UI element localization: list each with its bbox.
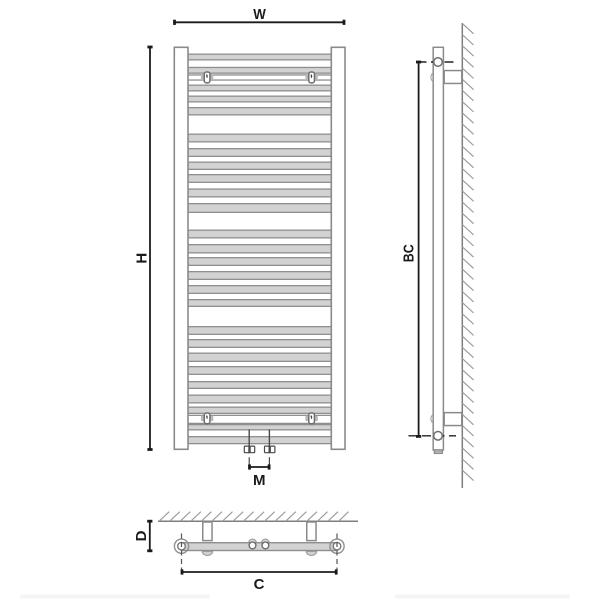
svg-text:H: H	[134, 253, 151, 264]
svg-text:W: W	[253, 6, 266, 23]
svg-text:C: C	[254, 576, 265, 593]
svg-text:M: M	[253, 472, 266, 489]
svg-text:D: D	[133, 530, 150, 541]
svg-text:BC: BC	[401, 244, 418, 262]
